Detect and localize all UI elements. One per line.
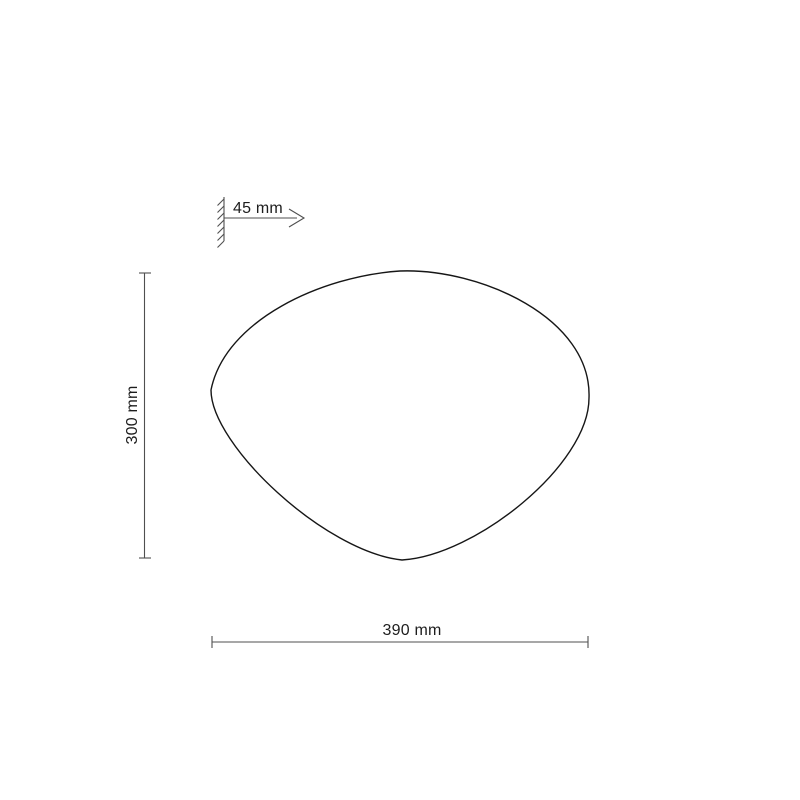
wall-hatch-stroke <box>218 199 225 206</box>
wall-hatch-stroke <box>218 234 225 241</box>
wall-hatch-stroke <box>218 227 225 234</box>
wall-mount-hatch-icon <box>218 197 225 248</box>
wall-hatch-stroke <box>218 213 225 220</box>
width-dimension-label: 390 mm <box>383 622 442 639</box>
wall-hatch-stroke <box>218 220 225 227</box>
wall-hatch-stroke <box>218 206 225 213</box>
height-dimension-label: 300 mm <box>124 386 141 445</box>
lamp-dimension-drawing: 300 mm 390 mm 45 mm <box>0 0 800 800</box>
depth-dimension-label: 45 mm <box>233 200 283 217</box>
wall-hatch-stroke <box>218 241 225 248</box>
lamp-shade-outline <box>211 271 589 560</box>
dimension-diagram-canvas: 300 mm 390 mm 45 mm <box>0 0 800 800</box>
